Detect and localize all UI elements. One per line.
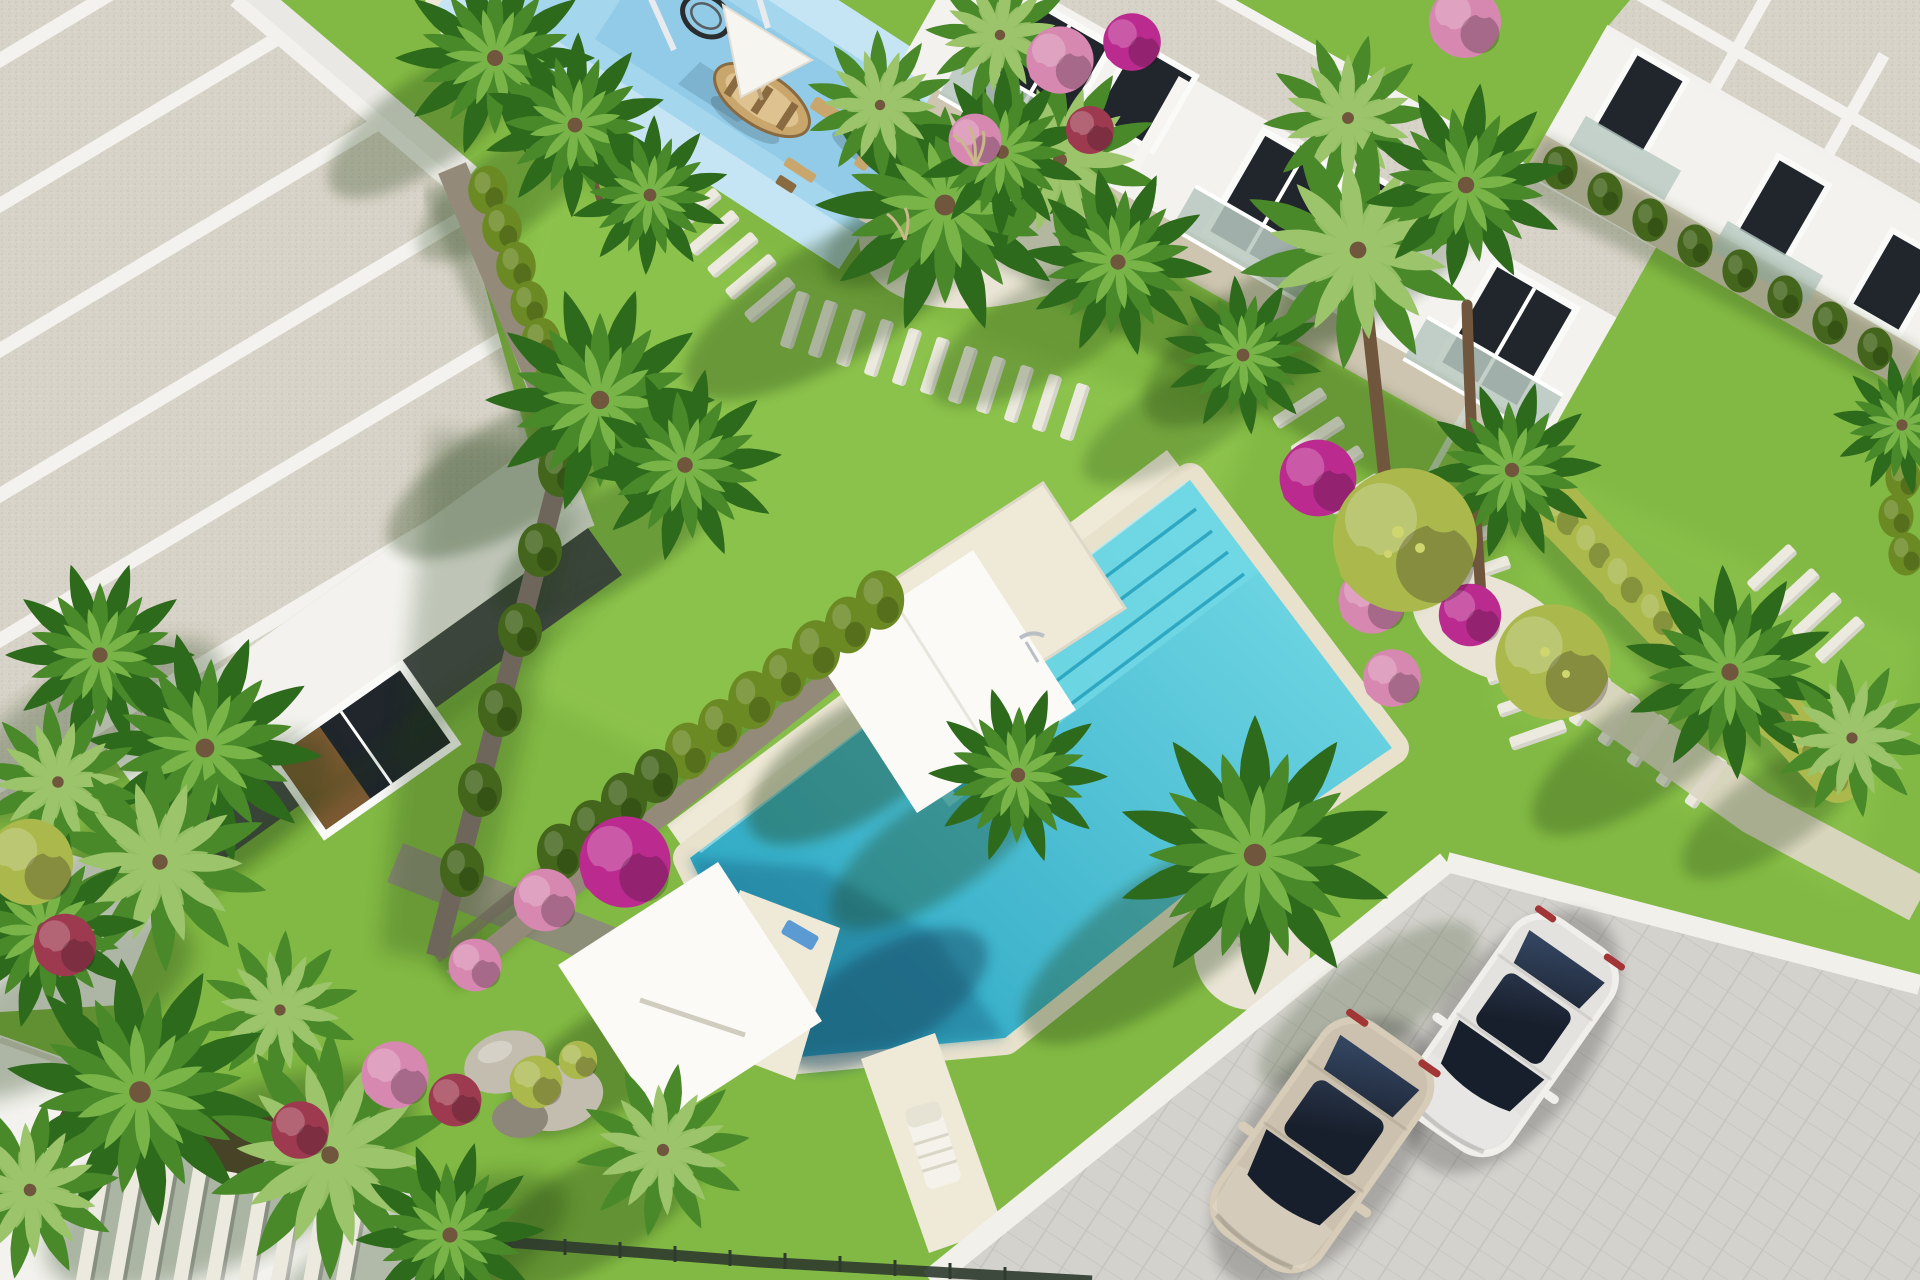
bougainvillea-magenta xyxy=(579,816,670,907)
scene-canvas xyxy=(0,0,1920,1280)
lime-shrub xyxy=(1495,604,1610,719)
flower-bush-red xyxy=(34,914,96,976)
flower-bush-red xyxy=(1066,106,1114,154)
flower-bush-pink xyxy=(1026,26,1093,93)
lime-shrub xyxy=(1333,468,1477,612)
rockery-shrub xyxy=(559,1041,597,1079)
bougainvillea-magenta xyxy=(1103,13,1161,71)
flower-bush-pink xyxy=(514,869,576,931)
aerial-render-stage xyxy=(0,0,1920,1280)
flower-bush-pink xyxy=(449,939,502,992)
flower-bush-red xyxy=(271,1101,329,1159)
flower-bush-pink xyxy=(361,1041,428,1108)
flower-bush-red xyxy=(429,1074,482,1127)
rockery-shrub xyxy=(510,1056,563,1109)
flower-bush-pink xyxy=(1363,649,1421,707)
